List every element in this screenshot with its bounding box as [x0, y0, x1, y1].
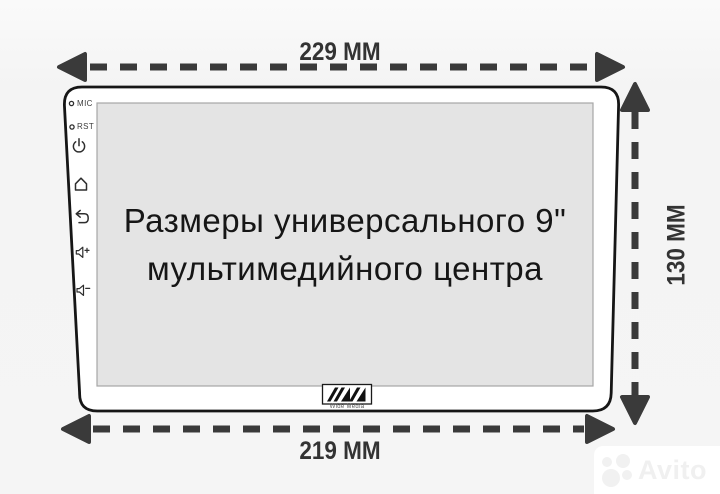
arrow-left-icon	[59, 54, 85, 80]
top-width-label: 229 MM	[299, 40, 380, 65]
avito-logo-icon	[594, 450, 636, 490]
rst-label: RST	[77, 123, 94, 131]
dimensions-diagram: 229 MM 219 MM 130 MM MIC RST Размеры уни…	[0, 0, 720, 494]
arrow-right-icon	[587, 416, 613, 442]
arrow-down-icon	[622, 397, 648, 423]
wide-media-label: Wide Media	[330, 404, 365, 410]
screen-caption: Размеры универсального 9" мультимедийног…	[97, 103, 593, 386]
bottom-width-label: 219 MM	[299, 439, 380, 464]
avito-watermark: Avito	[594, 446, 720, 494]
avito-watermark-text: Avito	[638, 455, 707, 486]
arrow-left-icon	[63, 416, 89, 442]
arrow-up-icon	[622, 84, 648, 110]
wide-media-logo-icon	[323, 385, 372, 405]
right-dimension-line	[622, 84, 648, 423]
screen-caption-line2: мультимедийного центра	[147, 252, 543, 286]
mic-label: MIC	[77, 100, 93, 108]
height-label: 130 MM	[665, 204, 690, 285]
screen-caption-line1: Размеры универсального 9"	[124, 204, 567, 238]
arrow-right-icon	[597, 54, 623, 80]
